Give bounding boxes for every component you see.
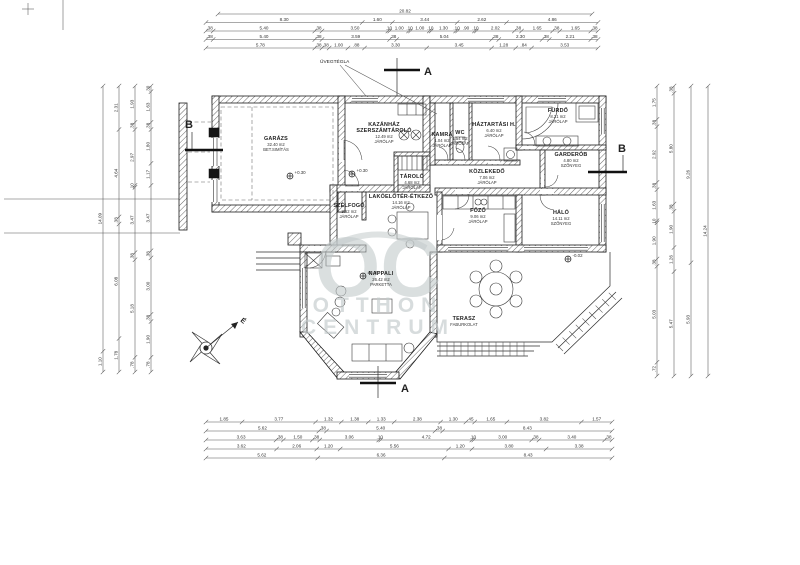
dimension-value: .38 [315,25,322,30]
section-a-top: A [424,66,432,78]
dimension-value: 1.26 [668,255,673,264]
dimension-value: 3.59 [351,34,360,39]
dimension-value: 1.78 [113,350,118,359]
dimension-value: 1.85 [220,416,229,421]
dimension-value: 20.82 [399,8,411,13]
level-value: +0.30 [295,170,307,175]
dimension-value: .84 [520,42,527,47]
section-b-right: B [618,143,626,155]
dimension-value: 1.65 [533,25,542,30]
room-floor: JÁRÓLAP [391,205,410,210]
room-name: GARDERÓB [554,150,587,158]
room-floor: PARKETTA [370,282,392,287]
dimension-value: 5.78 [256,42,265,47]
dimension-value: .38 [145,314,150,321]
dimension-chain: 9.265.93 [685,84,693,378]
dimension-value: 3.47 [145,213,150,222]
room-name: SZERSZÁMTÁROLÓ [356,126,411,134]
room-floor: JÁRÓLAP [374,139,393,144]
level-marker: +0.30 [349,168,368,177]
dimension-chain: 14.091.10 [97,84,105,374]
dimension-value: 14.24 [702,225,707,237]
dimension-value: 8.43 [523,425,532,430]
dimension-value: 3.62 [237,443,246,448]
dimension-value: 3.00 [498,434,507,439]
dimension-value: .38 [591,25,598,30]
dimension-value: 3.45 [455,42,464,47]
dimension-value: .88 [353,42,360,47]
dimension-value: 1.60 [373,17,382,22]
dimension-chain: 1.93.382.97.103.47.385.18.78 [129,84,137,374]
dimension-value: .38 [668,204,673,211]
dimension-value: .38 [542,34,549,39]
uvegtegla-note: ÜVEGTÉGLA [320,58,437,114]
dimension-value: 5.18 [129,304,134,313]
level-value: ±0.00 [368,270,380,275]
dimension-chain: 5.626.368.43 [204,452,614,460]
dimension-value: .38 [322,42,329,47]
room-floor: SZŐNYEG [551,221,571,226]
dimension-value: 8.30 [280,17,289,22]
room-label-furdo: FÜRDŐ8.21 m2JÁRÓLAP [548,107,568,124]
room-name: KÖZLEKEDŐ [469,168,505,175]
north-label: É [239,316,249,326]
dimension-value: 2.62 [477,17,486,22]
north-arrow: É [190,316,248,364]
dimension-value: 1.33 [377,416,386,421]
dimension-value: 5.04 [440,34,449,39]
dimension-value: 4.72 [422,434,431,439]
dimension-value: .90 [463,25,470,30]
dimension-value: 3.44 [420,17,429,22]
room-floor: JÁRÓLAP [484,133,503,138]
dimension-value: 3.00 [145,281,150,290]
dimension-chain: 3.622.061.205.561.203.803.38 [204,443,614,451]
dimension-value: .38 [315,42,322,47]
dimension-value: 3.77 [274,416,283,421]
dimension-chain: 5.62.385.40.388.43 [204,425,614,433]
dimension-value: .38 [320,425,327,430]
dimension-value: .38 [113,217,118,224]
dimension-value: .38 [651,119,656,126]
dimension-chain: .385.40.383.59.385.04.382.30.382.21.38 [204,34,600,42]
dimension-value: 1.80 [145,142,150,151]
room-label-etkezo: LAKÓELŐTÉR-ÉTKEZŐ14.16 m2JÁRÓLAP [369,192,433,210]
dimension-value: 3.38 [575,443,584,448]
room-name: HÁLÓ [553,208,569,216]
dimension-value: 6.08 [113,276,118,285]
dimension-value: 5.62 [257,452,266,457]
dimension-value: 5.40 [376,425,385,430]
dimension-value: 3.40 [567,434,576,439]
dimension-value: 1.00 [395,25,404,30]
dimension-value: .30 [145,85,150,92]
dimension-value: 1.17 [145,169,150,178]
room-label-fozo: FŐZŐ9.06 m2JÁRÓLAP [468,207,487,224]
dimension-chain: .385.80.381.901.265.47 [668,84,676,378]
dimension-value: 1.50 [293,434,302,439]
watermark-line1: OTTHON [313,294,444,317]
dimension-chain: 1.853.771.321.381.332.381.30.451.653.821… [204,416,614,424]
dimension-value: 1.65 [486,416,495,421]
dimension-chain: 3.63.381.50.383.06.104.72.103.00.383.40.… [204,434,614,442]
dimension-value: .38 [206,25,213,30]
level-value: +0.30 [357,168,369,173]
dimension-value: 4.64 [113,168,118,177]
floorplan-page: OC OTTHON CENTRUM A A B B ÜVEGTÉGLA É G [0,0,800,565]
dimension-value: .38 [651,182,656,189]
room-name: FÜRDŐ [548,107,568,114]
dimension-value: 1.90 [651,236,656,245]
dimension-value: .45 [467,416,474,421]
room-label-garderob: GARDERÓB4.80 m2SZŐNYEG [554,150,587,168]
dimension-value: .78 [129,361,134,368]
dimension-value: 2.38 [413,416,422,421]
dimension-value: 3.50 [350,25,359,30]
dimension-value: .38 [436,425,443,430]
dimension-value: 1.57 [592,416,601,421]
dimension-value: 14.09 [97,212,102,224]
dimension-chain: 14.24 [702,84,710,378]
dimension-value: 3.47 [129,215,134,224]
uvegtegla-label: ÜVEGTÉGLA [320,58,350,65]
dimension-value: 5.80 [668,144,673,153]
dimension-value: .72 [651,365,656,372]
dimension-value: 1.00 [415,25,424,30]
dimension-value: .38 [277,434,284,439]
room-label-kazanhaz: KAZÁNHÁZSZERSZÁMTÁROLÓ12.49 m2JÁRÓLAP [356,121,411,144]
room-name: SZÉLFOGÓ [333,201,364,209]
dimension-value: .38 [206,34,213,39]
site-lines [4,0,211,233]
dimension-value: 5.93 [685,314,690,323]
room-label-kozlekedo: KÖZLEKEDŐ7.06 m2JÁRÓLAP [469,168,505,185]
dimension-value: 2.31 [113,103,118,112]
dimension-value: 1.30 [439,25,448,30]
dimension-value: 5.62 [258,425,267,430]
dimension-value: 1.28 [499,42,508,47]
dimension-value: .38 [591,34,598,39]
dimension-value: 5.40 [260,25,269,30]
dimension-value: 5.56 [390,443,399,448]
dimension-value: 3.06 [345,434,354,439]
dimension-value: .38 [651,259,656,266]
dimension-value: 2.92 [651,150,656,159]
dimension-chain: 1.75.382.92.381.63.101.90.385.03.72 [651,84,659,378]
dimension-value: .38 [390,34,397,39]
dimension-value: 1.32 [324,416,333,421]
dimension-chain: .385.40.383.50.101.00.101.00.101.30.10.9… [204,25,600,33]
dimension-value: 3.53 [560,42,569,47]
dimension-chain: 2.314.64.386.081.78 [113,84,121,374]
dimension-value: 9.26 [685,169,690,178]
dimension-value: .38 [145,122,150,129]
room-floor: FABURKOLAT [450,322,478,327]
room-floor: JÁRÓLAP [548,119,567,124]
dimension-value: 3.30 [391,42,400,47]
room-name: LAKÓELŐTÉR-ÉTKEZŐ [369,192,433,200]
room-floor: JÁRÓLAP [339,214,358,219]
dimension-value: 5.40 [260,34,269,39]
room-label-tarolo: TÁROLÓ4.68 m2JÁRÓLAP [400,172,424,190]
room-label-kamra: KAMRA1.04 m2JÁRÓLAP [431,132,452,148]
level-marker: +0.30 [287,170,306,179]
dimension-value: 1.00 [334,42,343,47]
room-floor: SZŐNYEG [561,163,581,168]
dimension-value: 1.90 [145,335,150,344]
dimension-value: 4.86 [548,17,557,22]
room-label-halo: HÁLÓ14.11 m2SZŐNYEG [551,208,571,226]
dimension-value: 2.30 [516,34,525,39]
room-floor: JÁRÓLAP [468,219,487,224]
dimension-value: 3.80 [505,443,514,448]
dimension-value: 5.03 [651,309,656,318]
level-marker: -0.02 [565,253,583,262]
room-name: GARÁZS [264,135,288,142]
dimension-value: 1.90 [668,224,673,233]
level-value: -0.02 [573,253,584,258]
dimension-value: .38 [129,122,134,129]
dimension-value: 1.10 [97,357,102,366]
room-name: TÁROLÓ [400,172,424,180]
room-name: FŐZŐ [470,207,486,214]
room-label-haztartasi: HÁZTARTÁSI H.6.40 m2JÁRÓLAP [472,121,516,138]
dimension-value: .38 [532,434,539,439]
dimension-value: .38 [315,34,322,39]
section-a-bottom: A [401,383,409,395]
dimension-value: .38 [145,251,150,258]
dimension-value: 1.20 [456,443,465,448]
room-floor: JÁRÓLAP [402,185,421,190]
dimension-chain: 20.82 [216,8,594,16]
dimension-chain: .301.63.381.801.173.47.383.00.381.90.78 [145,84,153,374]
room-label-terasz: TERASZFABURKOLAT [450,316,478,327]
dimension-value: .38 [605,434,612,439]
dimension-chain: 8.301.603.442.624.86 [204,17,600,25]
dimension-value: .38 [492,34,499,39]
dimension-value: 8.43 [524,452,533,457]
dimension-value: .38 [313,434,320,439]
dimension-value: 2.21 [566,34,575,39]
room-floor: JÁRÓLAP [432,143,451,148]
room-floor: BET.SIMÍTÁS [263,147,289,152]
dimension-value: 3.63 [237,434,246,439]
dimension-value: 1.75 [651,98,656,107]
dimension-value: 1.38 [350,416,359,421]
dimension-value: .38 [553,25,560,30]
watermark-line2: CENTRUM [301,316,455,339]
dimension-value: .38 [515,25,522,30]
dimension-value: 1.20 [324,443,333,448]
floor-plan-drawing: OC OTTHON CENTRUM A A B B ÜVEGTÉGLA É G [0,0,800,565]
room-label-garazs: GARÁZS32.40 m2BET.SIMÍTÁS [263,135,289,152]
dimension-chain: 5.78.38.381.00.883.303.451.28.843.53 [204,42,600,50]
dimension-value: 1.30 [449,416,458,421]
dimension-value: 2.06 [292,443,301,448]
room-floor: JÁRÓLAP [477,180,496,185]
terrace [437,252,622,356]
dimension-value: 2.02 [491,25,500,30]
dimension-value: .38 [129,253,134,260]
dimension-value: 1.63 [651,200,656,209]
room-name: HÁZTARTÁSI H. [472,121,516,128]
room-name: KAZÁNHÁZ [368,121,400,128]
dimension-value: 1.93 [129,99,134,108]
dimension-value: .78 [145,361,150,368]
room-floor: JÁRÓLAP [450,141,469,146]
dimension-value: 1.63 [145,102,150,111]
dimension-value: 3.82 [540,416,549,421]
section-b-left: B [185,119,193,131]
dimension-value: 6.36 [377,452,386,457]
dimension-value: 2.97 [129,153,134,162]
dimension-value: .38 [668,86,673,93]
dimension-value: 1.65 [571,25,580,30]
dimension-value: 5.47 [668,319,673,328]
